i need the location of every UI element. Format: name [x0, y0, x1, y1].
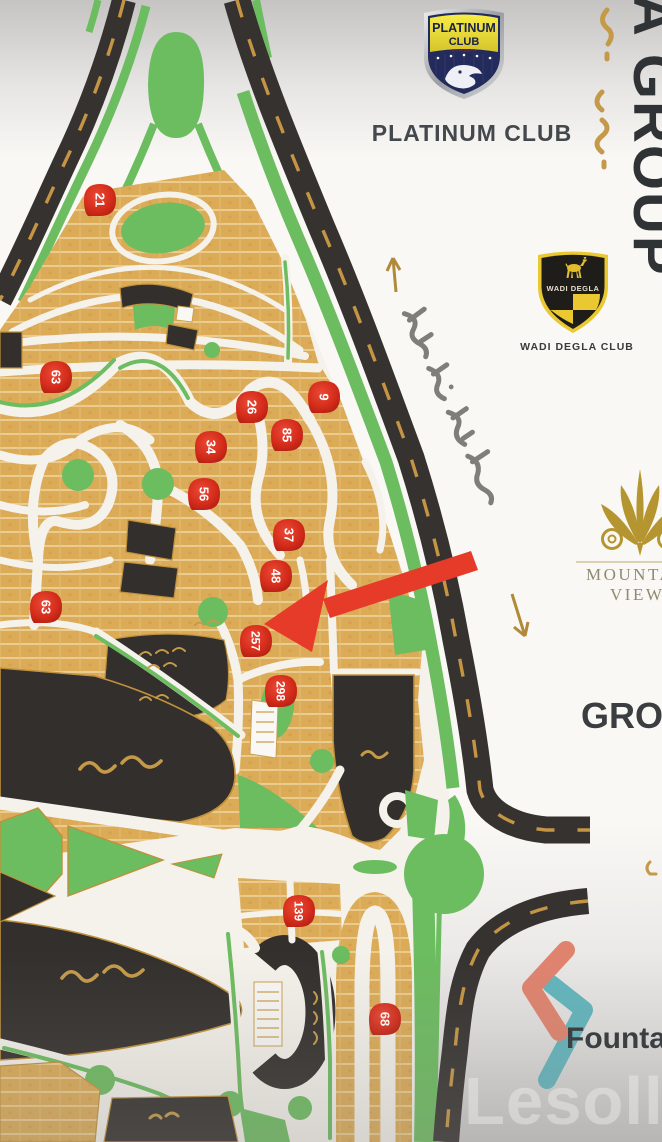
svg-text:37: 37	[282, 528, 297, 542]
svg-text:A GROUP: A GROUP	[621, 0, 662, 277]
svg-text:VIEW: VIEW	[610, 585, 662, 604]
svg-text:85: 85	[280, 428, 295, 442]
svg-text:9: 9	[317, 393, 332, 400]
svg-text:WADI DEGLA CLUB: WADI DEGLA CLUB	[520, 341, 634, 353]
svg-text:CLUB: CLUB	[449, 36, 480, 48]
svg-text:KATAMEYA: KATAMEYA	[452, 48, 477, 53]
svg-text:63: 63	[49, 370, 64, 384]
svg-text:PLATINUM CLUB: PLATINUM CLUB	[372, 120, 572, 146]
svg-text:48: 48	[269, 569, 284, 583]
svg-text:298: 298	[274, 681, 288, 701]
svg-text:139: 139	[292, 901, 306, 921]
svg-text:34: 34	[204, 440, 219, 455]
svg-text:WADI DEGLA: WADI DEGLA	[547, 284, 600, 293]
svg-text:257: 257	[249, 631, 263, 651]
svg-text:PLATINUM: PLATINUM	[432, 21, 496, 35]
svg-text:GROVE: GROVE	[581, 695, 662, 736]
svg-text:26: 26	[245, 400, 260, 414]
svg-text:63: 63	[39, 600, 54, 614]
svg-text:MOUNTAIN: MOUNTAIN	[586, 565, 662, 584]
svg-text:21: 21	[93, 193, 108, 207]
svg-text:56: 56	[197, 487, 212, 501]
